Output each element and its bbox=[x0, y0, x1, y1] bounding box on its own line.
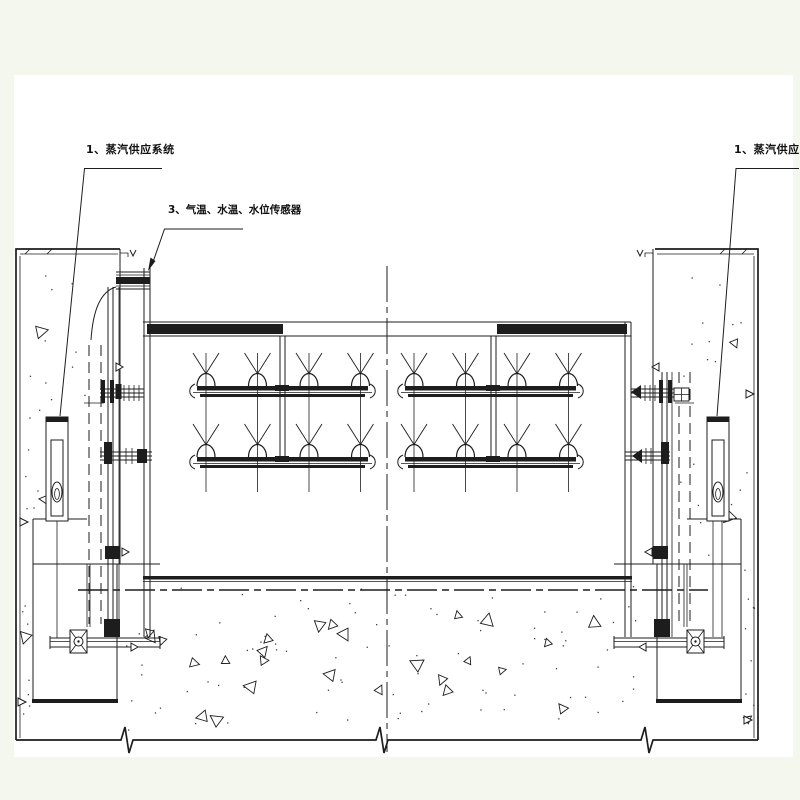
valve-left-bottom bbox=[104, 619, 120, 637]
valve-left-mid bbox=[105, 546, 120, 559]
valve-right-bottom bbox=[654, 619, 670, 637]
valve-right-mid bbox=[653, 546, 668, 559]
paper-sheet bbox=[14, 75, 793, 757]
drawing-page: 1、蒸汽供应系统 3、气温、水温、水位传感器 1、蒸汽供应系统 bbox=[0, 0, 800, 800]
tank-lid-left-cover bbox=[147, 324, 283, 334]
tank-lid-right-cover bbox=[497, 324, 627, 334]
label-sensors: 3、气温、水温、水位传感器 bbox=[168, 203, 302, 216]
label-steam-supply-right: 1、蒸汽供应系统 bbox=[734, 142, 800, 156]
label-steam-supply-left: 1、蒸汽供应系统 bbox=[86, 142, 175, 156]
drawing-canvas: 1、蒸汽供应系统 3、气温、水温、水位传感器 1、蒸汽供应系统 bbox=[0, 0, 800, 800]
